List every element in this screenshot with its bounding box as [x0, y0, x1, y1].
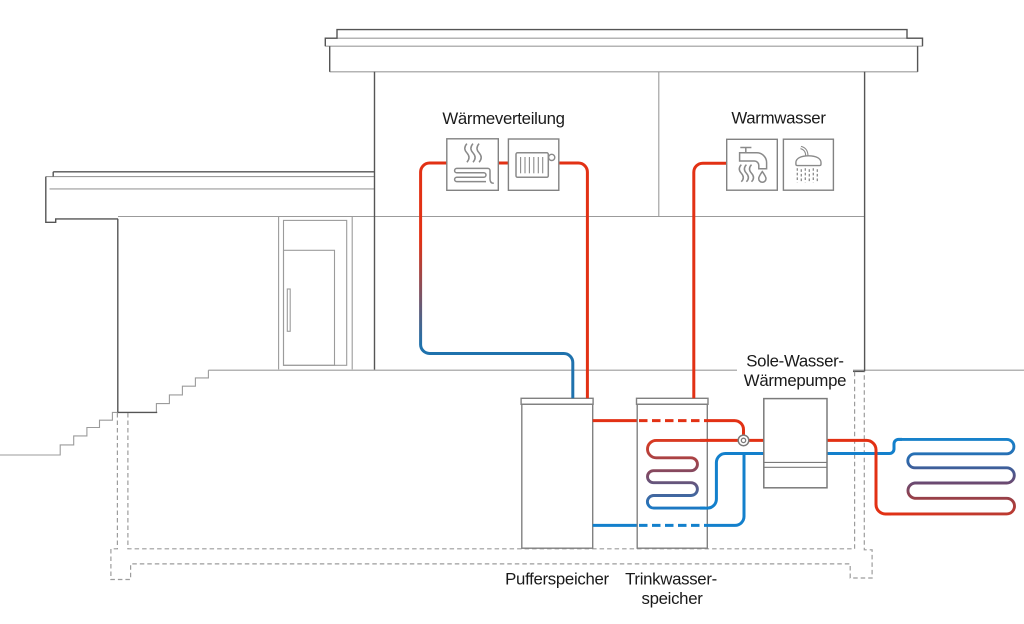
svg-text:speicher: speicher — [641, 589, 703, 608]
svg-text:Sole-Wasser-: Sole-Wasser- — [746, 352, 843, 371]
svg-text:Warmwasser: Warmwasser — [731, 108, 826, 127]
svg-text:Trinkwasser-: Trinkwasser- — [625, 569, 717, 588]
svg-text:Wärmepumpe: Wärmepumpe — [744, 371, 846, 390]
svg-text:Wärmeverteilung: Wärmeverteilung — [442, 109, 564, 128]
svg-text:Pufferspeicher: Pufferspeicher — [505, 569, 609, 588]
